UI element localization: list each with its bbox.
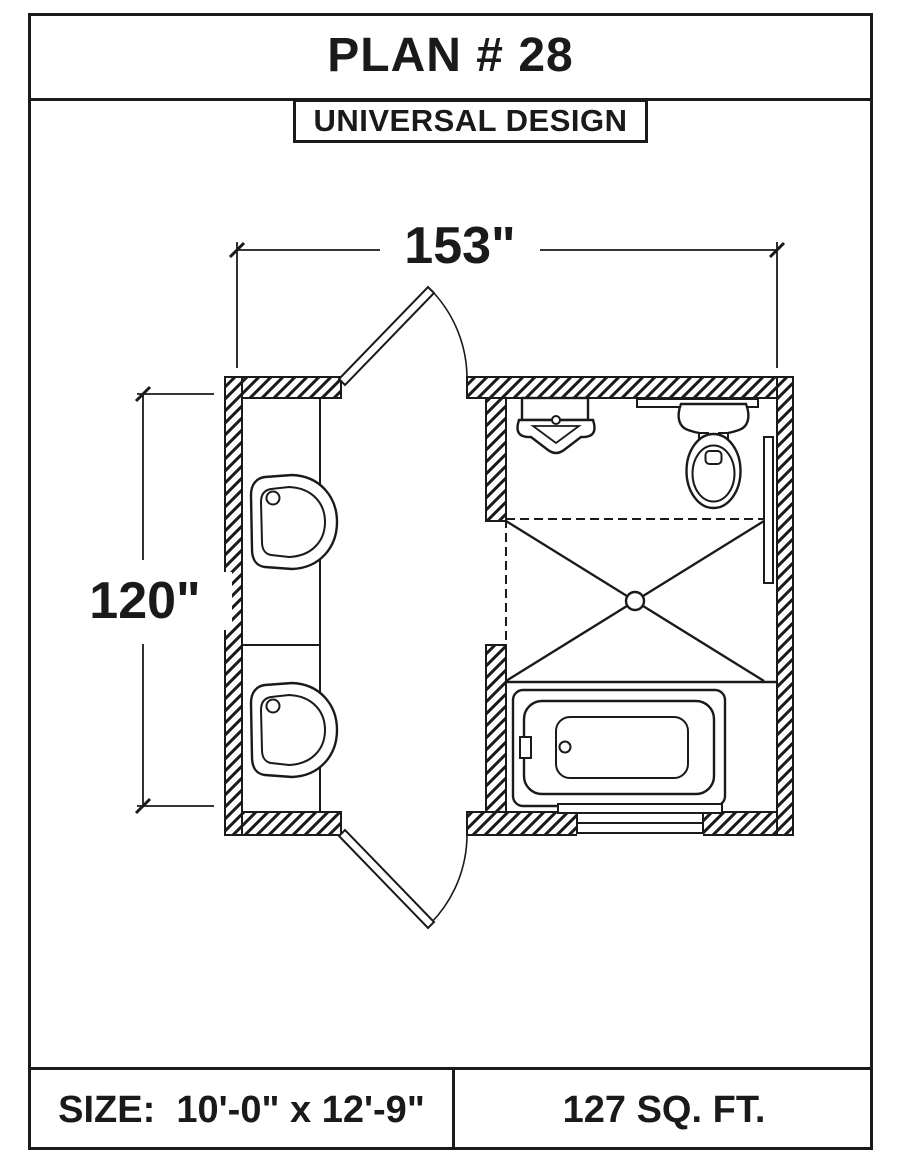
size-label: SIZE: 10'-0" x 12'-9" [31,1070,452,1150]
design-badge-label: UNIVERSAL DESIGN [313,103,627,139]
plan-sheet: PLAN # 28 UNIVERSAL DESIGN 153" 120" SIZ… [0,0,900,1165]
area-label: 127 SQ. FT. [455,1070,873,1150]
plan-title: PLAN # 28 [28,16,873,94]
dimension-width-label: 153" [380,217,540,275]
design-badge: UNIVERSAL DESIGN [293,99,648,143]
dimension-height-label: 120" [58,572,232,630]
